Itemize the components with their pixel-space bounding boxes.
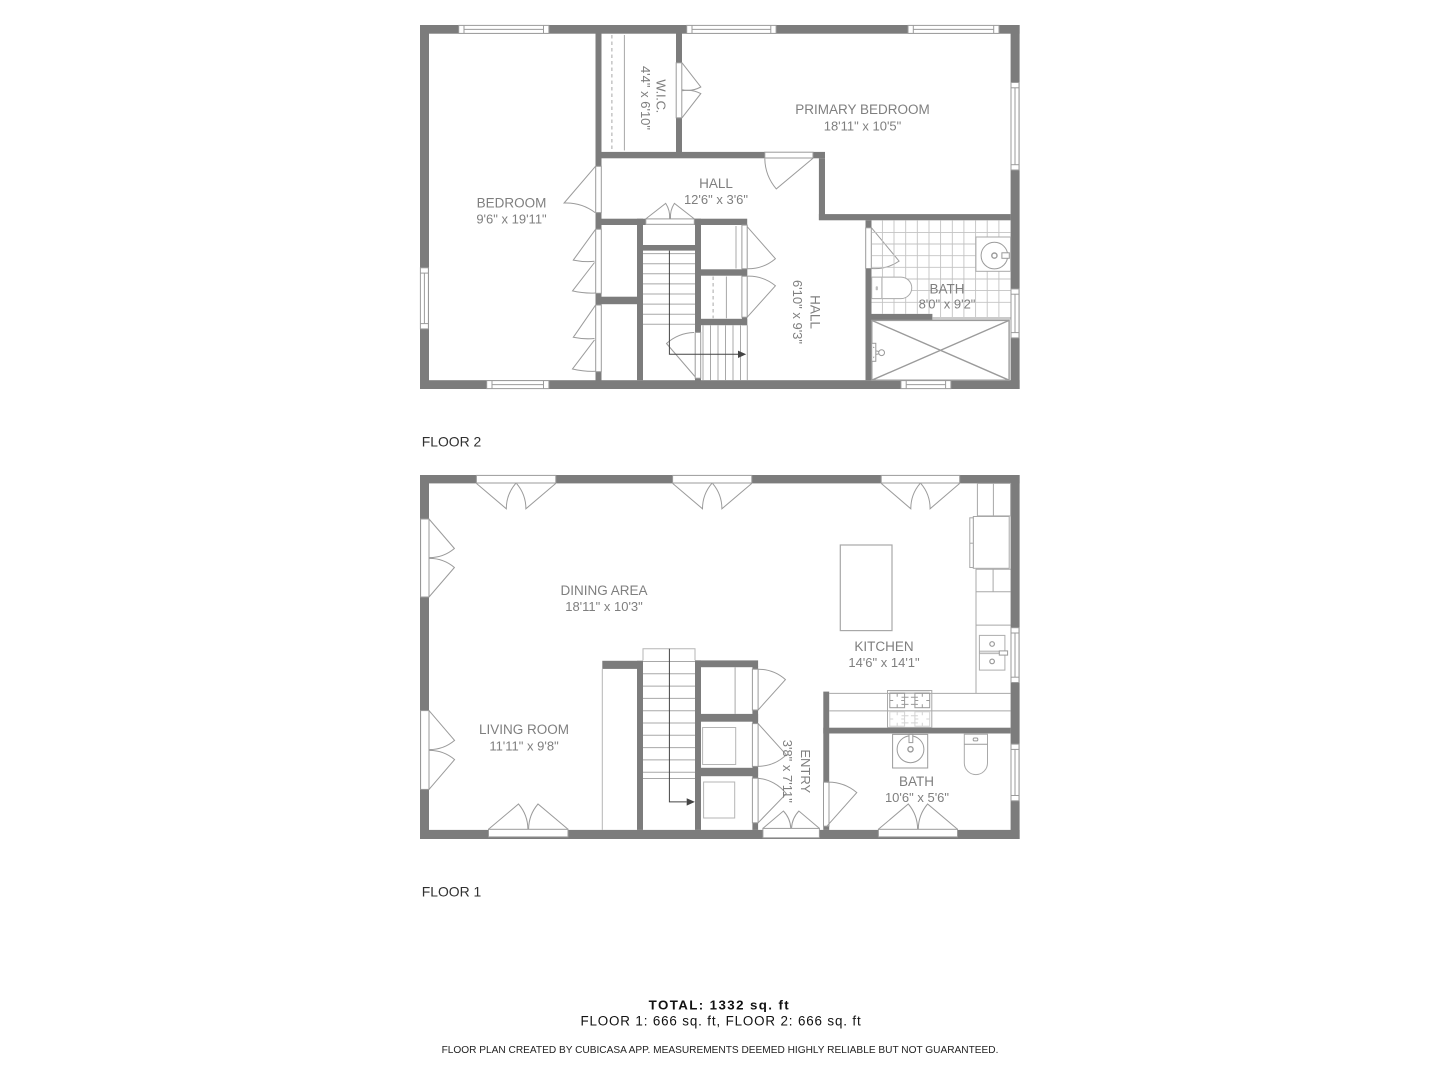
svg-text:BATH: BATH [929, 282, 964, 297]
svg-text:BEDROOM: BEDROOM [477, 196, 547, 211]
svg-text:18'11" x 10'5": 18'11" x 10'5" [824, 118, 902, 133]
svg-text:DINING AREA: DINING AREA [560, 583, 647, 598]
svg-text:PRIMARY BEDROOM: PRIMARY BEDROOM [795, 102, 930, 117]
svg-text:11'11" x 9'8": 11'11" x 9'8" [489, 739, 559, 754]
svg-text:6'10" x 9'3": 6'10" x 9'3" [790, 280, 805, 344]
svg-text:HALL: HALL [699, 176, 733, 191]
svg-text:HALL: HALL [808, 295, 823, 329]
svg-text:ENTRY: ENTRY [798, 749, 813, 793]
svg-text:8'0" x 9'2": 8'0" x 9'2" [919, 297, 976, 312]
svg-text:18'11" x 10'3": 18'11" x 10'3" [565, 599, 643, 614]
svg-text:10'6" x 5'6": 10'6" x 5'6" [885, 790, 949, 805]
svg-text:FLOOR 2: FLOOR 2 [422, 434, 482, 450]
svg-text:LIVING ROOM: LIVING ROOM [479, 722, 569, 737]
svg-text:14'6" x 14'1": 14'6" x 14'1" [848, 655, 920, 670]
svg-text:KITCHEN: KITCHEN [854, 639, 913, 654]
svg-text:3'8" x 7'11": 3'8" x 7'11" [780, 740, 795, 803]
svg-text:BATH: BATH [899, 774, 934, 789]
svg-text:W.I.C.: W.I.C. [654, 79, 669, 113]
svg-text:4'4" x 6'10": 4'4" x 6'10" [638, 66, 653, 130]
svg-text:12'6" x 3'6": 12'6" x 3'6" [684, 192, 748, 207]
svg-text:TOTAL: 1332 sq. ft: TOTAL: 1332 sq. ft [649, 998, 790, 1013]
svg-text:9'6" x 19'11": 9'6" x 19'11" [476, 212, 547, 227]
svg-text:FLOOR 1: FLOOR 1 [422, 884, 482, 900]
svg-text:FLOOR 1: 666 sq. ft, FLOOR 2:: FLOOR 1: 666 sq. ft, FLOOR 2: 666 sq. ft [580, 1013, 861, 1028]
svg-text:FLOOR PLAN CREATED BY CUBICASA: FLOOR PLAN CREATED BY CUBICASA APP. MEAS… [442, 1045, 999, 1056]
